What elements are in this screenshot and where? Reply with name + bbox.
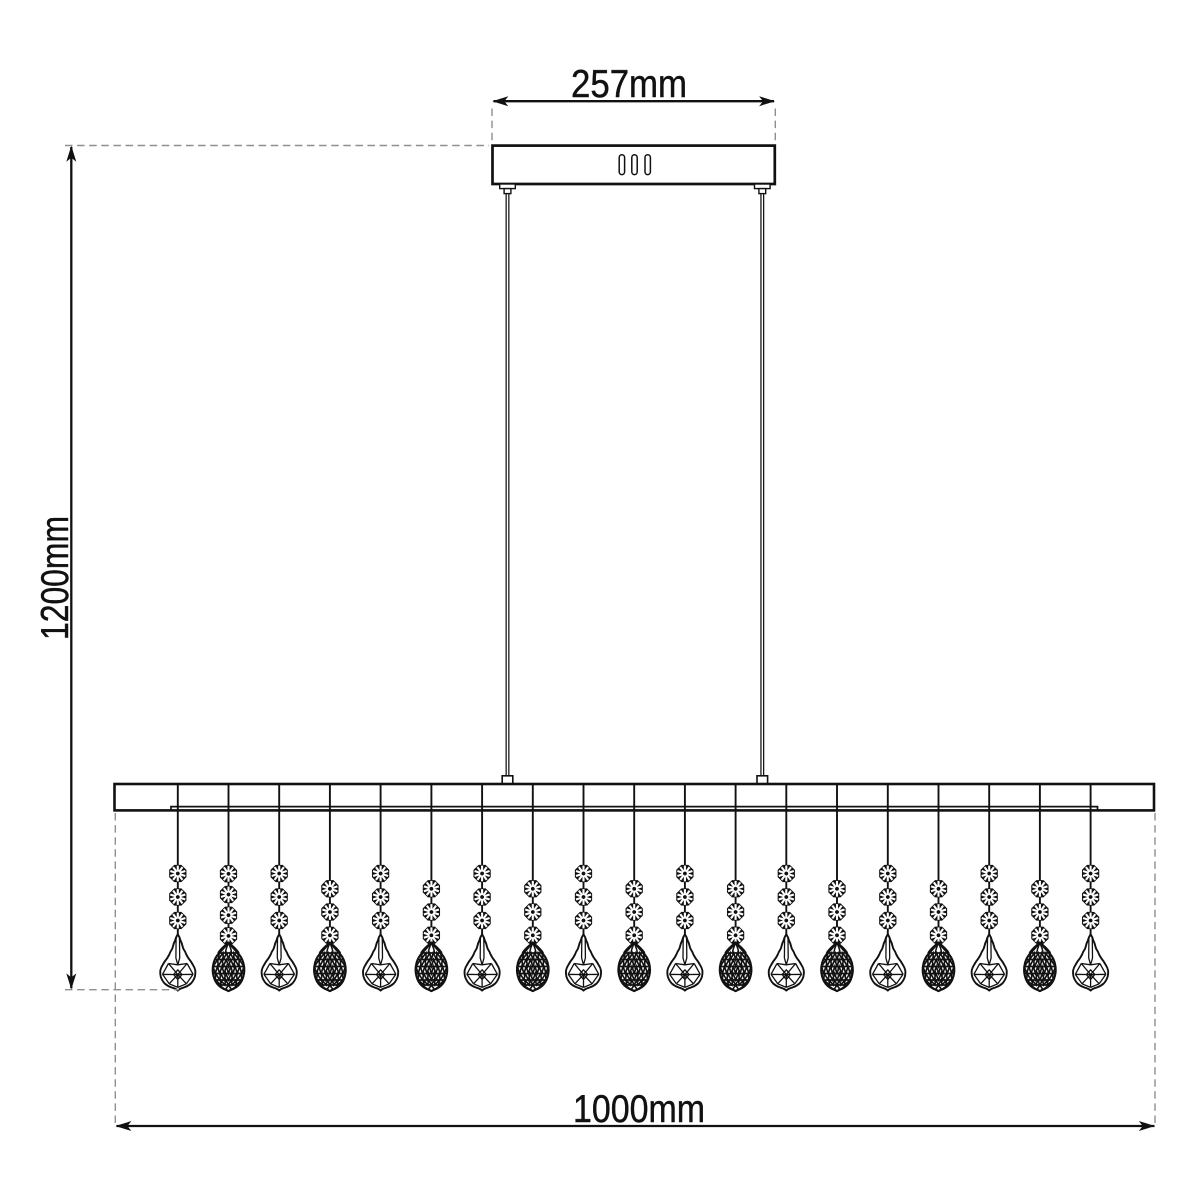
svg-text:257mm: 257mm [571, 63, 687, 106]
svg-text:1000mm: 1000mm [573, 1088, 705, 1131]
svg-text:1200mm: 1200mm [34, 516, 77, 640]
